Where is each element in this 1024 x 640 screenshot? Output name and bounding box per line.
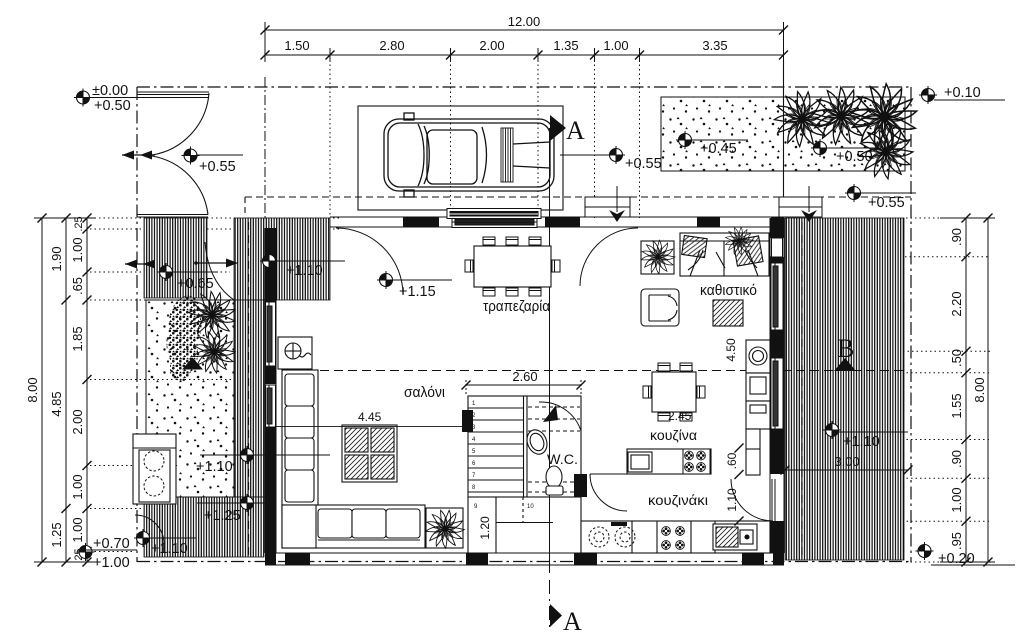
svg-text:1.90: 1.90 <box>49 246 64 271</box>
svg-text:B: B <box>837 334 854 363</box>
svg-text:3.35: 3.35 <box>702 38 727 53</box>
svg-text:±0.00: ±0.00 <box>92 83 128 99</box>
svg-text:τραπεζαρία: τραπεζαρία <box>483 298 550 315</box>
svg-text:1.20: 1.20 <box>478 516 492 540</box>
svg-text:+1.15: +1.15 <box>399 284 436 300</box>
svg-text:2.80: 2.80 <box>379 38 404 53</box>
svg-text:1.10: 1.10 <box>725 488 739 512</box>
svg-text:.60: .60 <box>725 452 739 469</box>
svg-text:1.25: 1.25 <box>49 522 64 547</box>
svg-text:+1.10: +1.10 <box>843 434 880 450</box>
svg-text:2.20: 2.20 <box>949 291 964 316</box>
svg-text:10: 10 <box>527 504 534 510</box>
svg-text:4.50: 4.50 <box>724 338 738 362</box>
svg-text:+0.65: +0.65 <box>177 276 214 292</box>
svg-text:+1.10: +1.10 <box>286 263 323 279</box>
svg-text:κουζινάκι: κουζινάκι <box>648 492 708 508</box>
svg-text:1.00: 1.00 <box>70 517 85 542</box>
svg-text:.25: .25 <box>73 216 85 231</box>
svg-text:W.C.: W.C. <box>547 452 578 467</box>
svg-text:.90: .90 <box>949 450 964 468</box>
svg-text:2.60: 2.60 <box>512 369 537 384</box>
svg-text:.95: .95 <box>949 532 964 550</box>
svg-text:8.00: 8.00 <box>25 377 40 402</box>
svg-text:1.55: 1.55 <box>949 393 964 418</box>
svg-text:.65: .65 <box>70 277 85 295</box>
svg-text:12.00: 12.00 <box>508 14 541 29</box>
svg-text:1.00: 1.00 <box>70 474 85 499</box>
svg-text:1.35: 1.35 <box>553 38 578 53</box>
svg-text:4.85: 4.85 <box>49 391 64 416</box>
svg-text:1.00: 1.00 <box>70 237 85 262</box>
svg-text:καθιστικό: καθιστικό <box>700 282 757 299</box>
svg-text:+0.50: +0.50 <box>94 98 131 114</box>
svg-text:+0.55: +0.55 <box>868 195 905 211</box>
svg-text:A: A <box>566 116 585 145</box>
svg-text:1.00: 1.00 <box>949 487 964 512</box>
svg-text:+1.00: +1.00 <box>93 555 130 571</box>
svg-text:1.00: 1.00 <box>603 38 628 53</box>
svg-text:+0.70: +0.70 <box>93 536 130 552</box>
svg-text:κουζίνα: κουζίνα <box>650 427 697 443</box>
svg-text:+0.45: +0.45 <box>700 141 737 157</box>
svg-text:8.00: 8.00 <box>972 377 987 402</box>
svg-text:+0.20: +0.20 <box>938 551 975 567</box>
svg-text:+0.10: +0.10 <box>944 85 981 101</box>
svg-text:2.00: 2.00 <box>479 38 504 53</box>
svg-text:.90: .90 <box>949 228 964 246</box>
svg-text:σαλόνι: σαλόνι <box>404 384 445 401</box>
svg-text:+0.50: +0.50 <box>836 149 873 165</box>
svg-text:+1.10: +1.10 <box>151 541 188 557</box>
svg-text:4.45: 4.45 <box>358 410 382 424</box>
svg-text:A: A <box>563 607 582 636</box>
svg-text:2.45: 2.45 <box>668 409 692 423</box>
svg-text:+0.55: +0.55 <box>625 156 662 172</box>
svg-text:3.00: 3.00 <box>834 454 859 469</box>
svg-text:2.00: 2.00 <box>70 409 85 434</box>
svg-text:+0.55: +0.55 <box>199 159 236 175</box>
svg-text:+1.25: +1.25 <box>204 508 241 524</box>
svg-text:1.50: 1.50 <box>284 38 309 53</box>
svg-text:+1.10: +1.10 <box>196 459 233 475</box>
svg-text:1.85: 1.85 <box>70 326 85 351</box>
